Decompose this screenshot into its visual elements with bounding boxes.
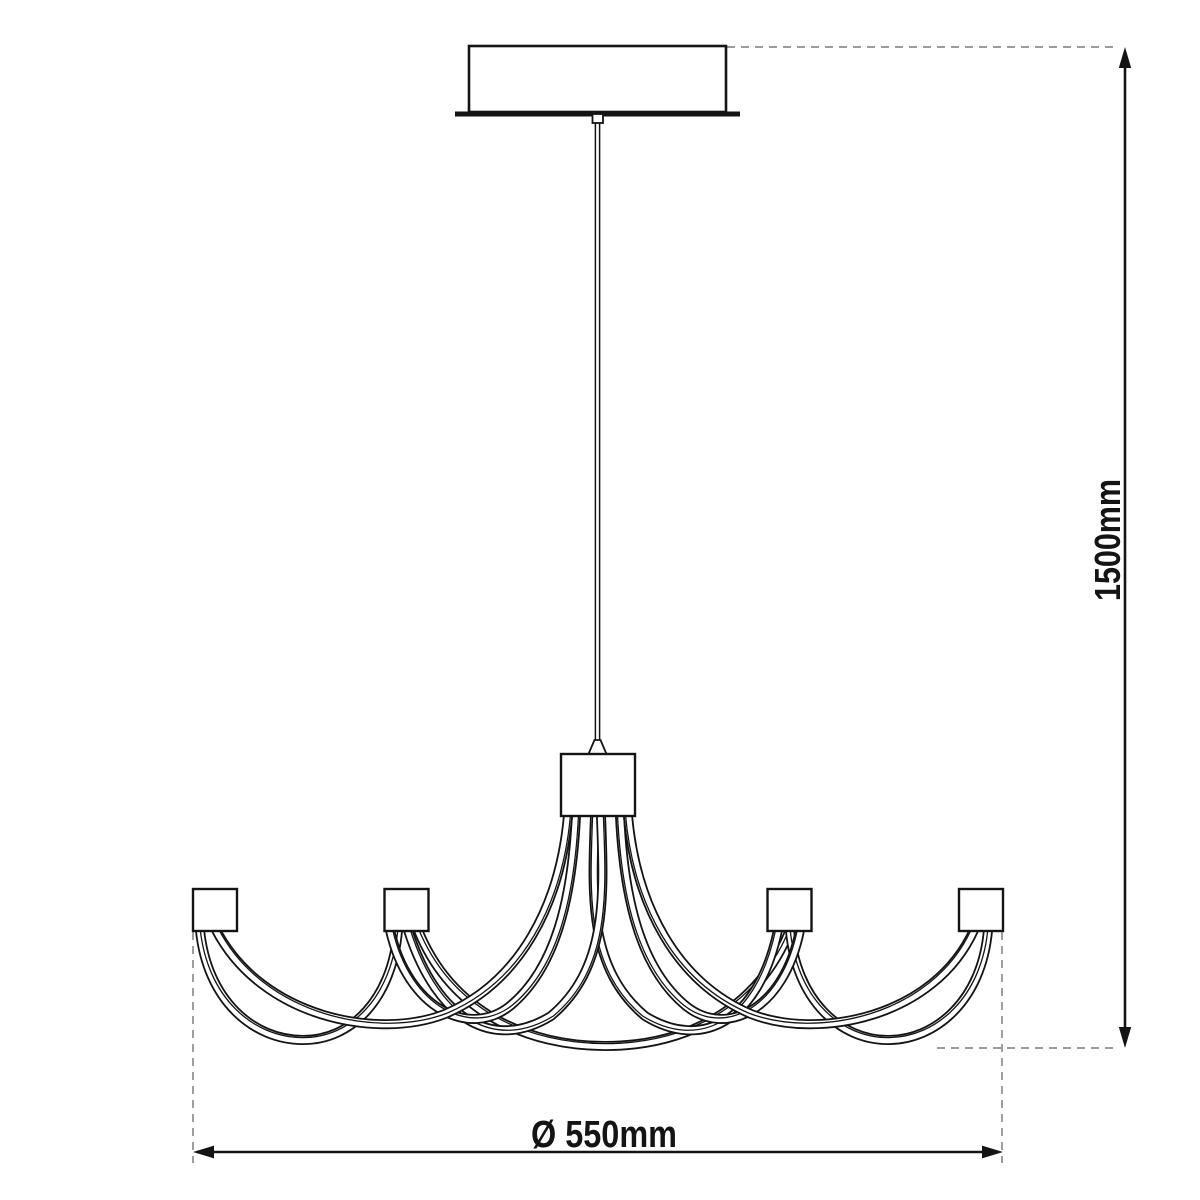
height-dimension-label: 1500mm bbox=[1087, 479, 1128, 601]
diameter-dimension-label: Ø 550mm bbox=[531, 1114, 677, 1156]
chandelier-dimension-diagram: 1500mm Ø 550mm bbox=[0, 0, 1200, 1200]
technical-drawing-page: 1500mm Ø 550mm bbox=[0, 0, 1200, 1200]
lamp-head-inner-left bbox=[385, 889, 429, 931]
lamp-head-outer-left bbox=[193, 889, 237, 931]
arrow-up-icon bbox=[1119, 47, 1131, 68]
cable-gripper bbox=[589, 740, 607, 754]
cable-exit-connector bbox=[593, 114, 604, 123]
ceiling-canopy bbox=[455, 46, 740, 123]
extension-lines bbox=[193, 47, 1117, 1163]
central-body bbox=[561, 754, 635, 816]
dimension-height: 1500mm bbox=[1087, 47, 1131, 1048]
canopy-box bbox=[469, 46, 726, 112]
lamp-head-outer-right bbox=[959, 889, 1003, 931]
chandelier-arms bbox=[200, 815, 988, 1046]
dimension-diameter: Ø 550mm bbox=[193, 1114, 1003, 1158]
arrow-down-icon bbox=[1119, 1027, 1131, 1048]
arrow-right-icon bbox=[982, 1146, 1003, 1159]
suspension-cable bbox=[595, 123, 599, 742]
arrow-left-icon bbox=[193, 1146, 214, 1159]
lamp-head-inner-right bbox=[768, 889, 812, 931]
